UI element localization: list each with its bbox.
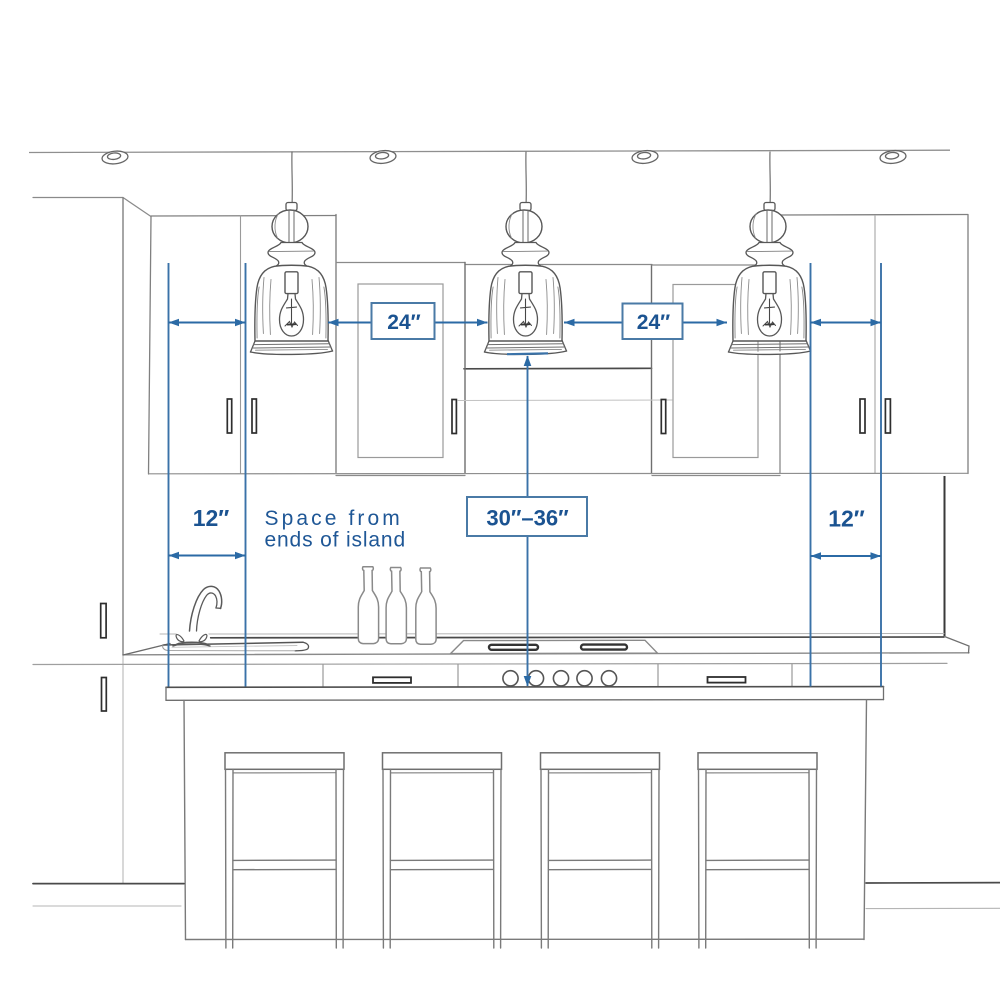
svg-text:12″: 12″	[828, 506, 865, 532]
svg-text:30″–36″: 30″–36″	[486, 506, 569, 531]
svg-text:24″: 24″	[637, 311, 670, 334]
svg-text:12″: 12″	[193, 505, 230, 531]
svg-text:Space from: Space from	[265, 507, 403, 530]
svg-text:24″: 24″	[387, 311, 420, 334]
svg-text:ends of island: ends of island	[265, 529, 407, 552]
